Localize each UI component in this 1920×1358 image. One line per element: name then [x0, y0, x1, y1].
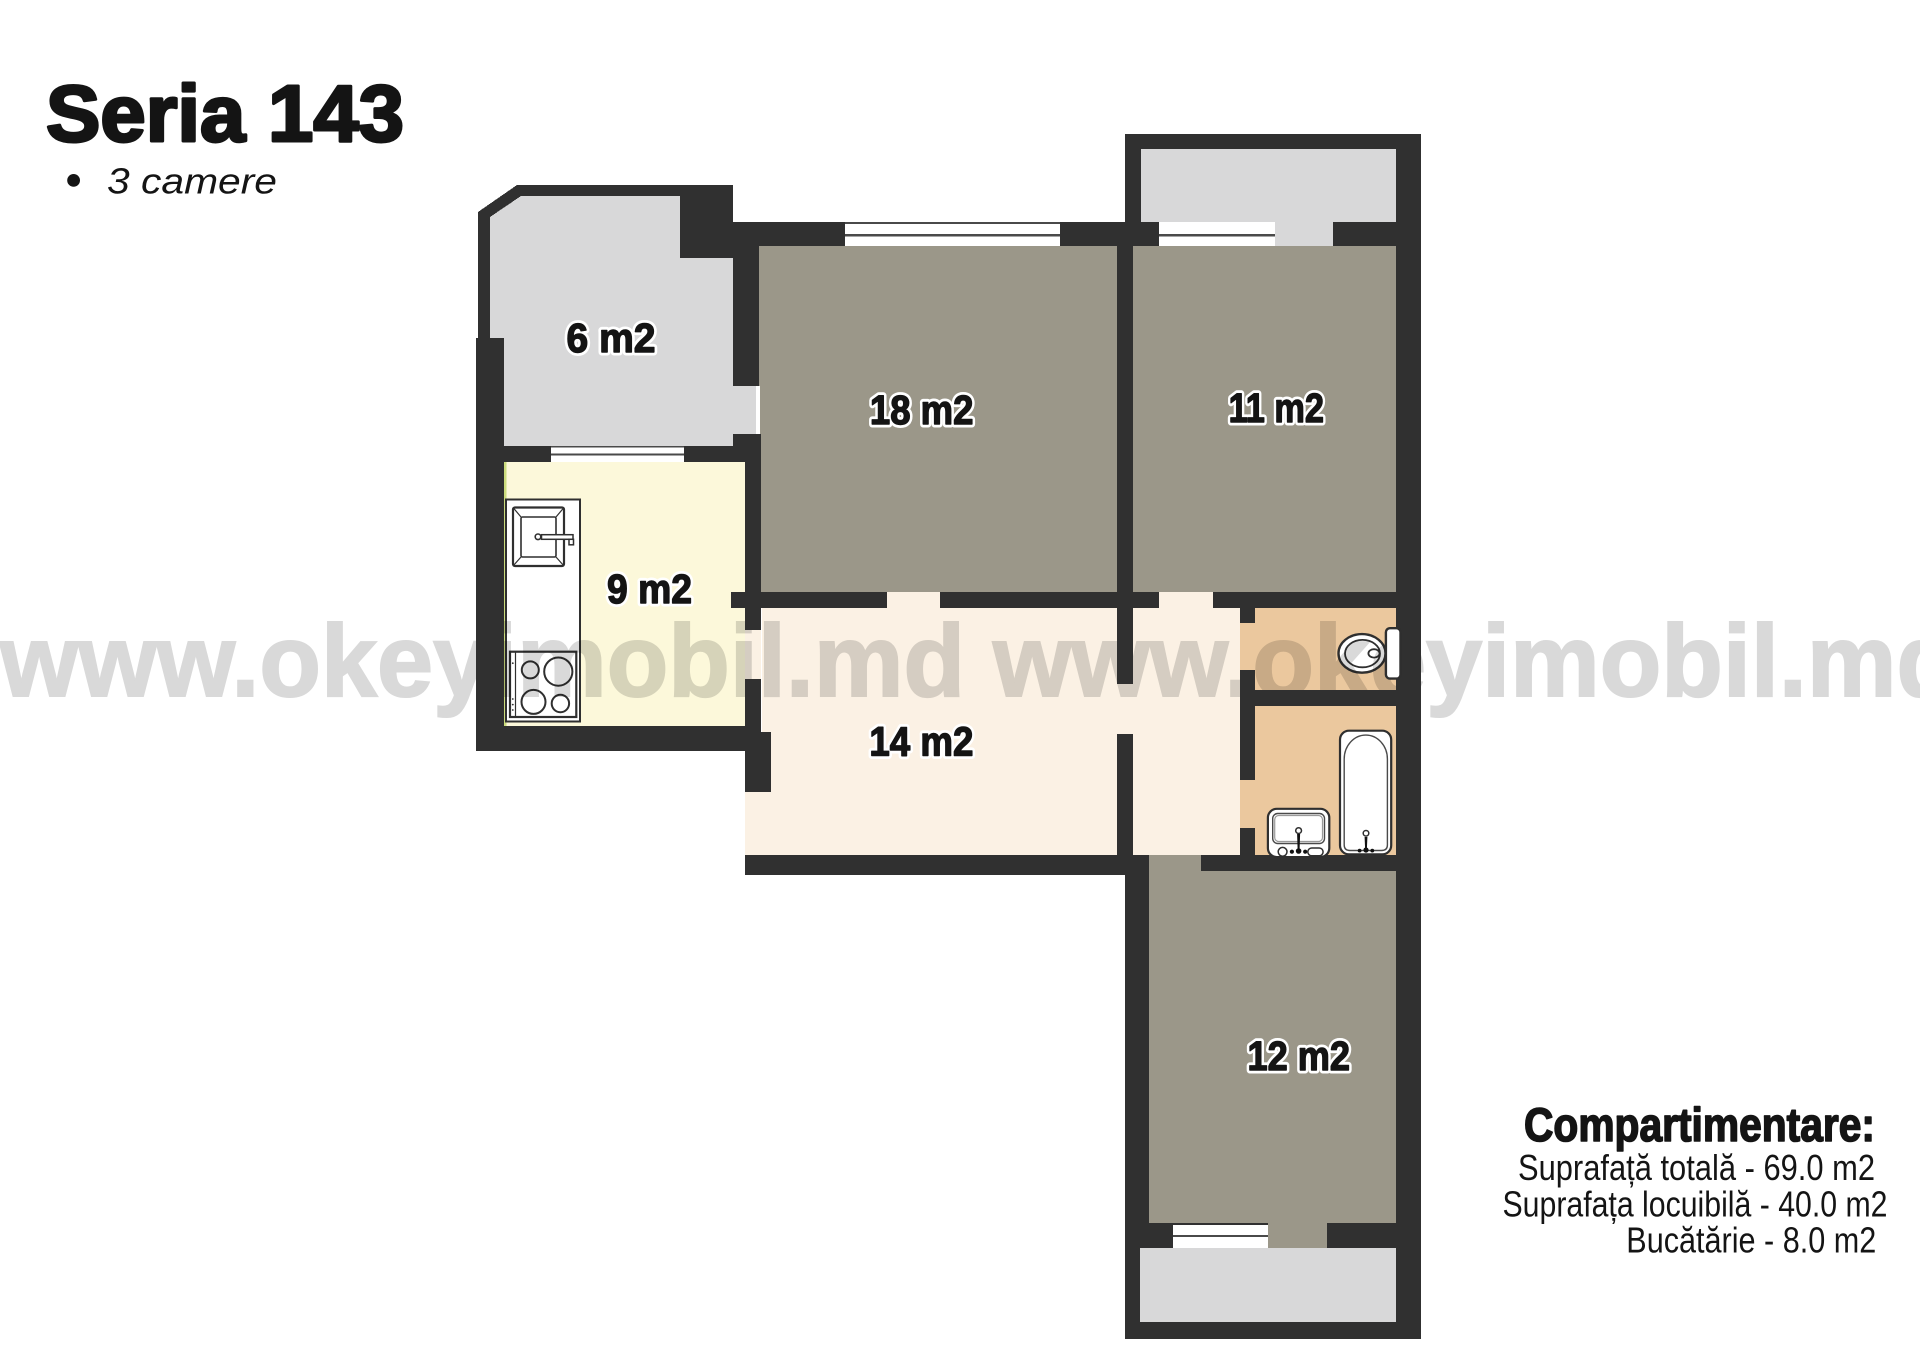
svg-text:9 m2: 9 m2 [607, 566, 692, 612]
svg-text:Compartimentare:: Compartimentare: [1524, 1098, 1875, 1151]
svg-text:Suprafața locuibilă - 40.0 m2: Suprafața locuibilă - 40.0 m2 [1503, 1184, 1888, 1225]
svg-text:6 m2: 6 m2 [567, 315, 656, 361]
svg-text:Bucătărie - 8.0 m2: Bucătărie - 8.0 m2 [1626, 1220, 1876, 1261]
svg-text:11 m2: 11 m2 [1229, 385, 1324, 431]
svg-text:Seria 143: Seria 143 [46, 69, 404, 158]
svg-text:3 camere: 3 camere [107, 161, 277, 202]
svg-text:Suprafață totală - 69.0 m2: Suprafață totală - 69.0 m2 [1518, 1147, 1875, 1188]
svg-text:18 m2: 18 m2 [870, 387, 974, 433]
svg-text:14 m2: 14 m2 [869, 719, 973, 765]
svg-text:www.okeyimobil.md www.okeyimob: www.okeyimobil.md www.okeyimobil.md [0, 604, 1920, 718]
svg-text:12 m2: 12 m2 [1248, 1033, 1351, 1079]
